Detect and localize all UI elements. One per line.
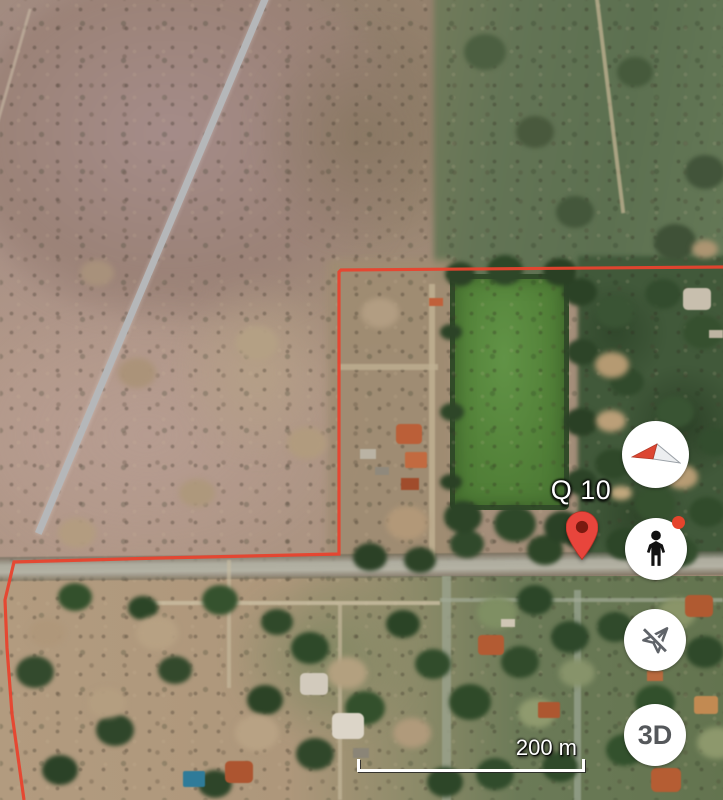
dirt-track <box>338 604 342 800</box>
street-view-badge <box>672 516 685 529</box>
pegman-icon <box>641 530 671 568</box>
terrain-buildings <box>0 0 22 16</box>
terrain-speckle <box>0 0 723 800</box>
pin-label: Q 10 <box>526 475 636 506</box>
dirt-track <box>338 364 438 370</box>
plane-crossed-icon <box>638 623 672 657</box>
satellite-map[interactable]: Q 10 <box>0 0 723 800</box>
scale-label: 200 m <box>417 735 577 761</box>
earth-app-screen: Q 10 3D 200 m <box>0 0 723 800</box>
flight-off-button[interactable] <box>624 609 686 671</box>
map-pin[interactable] <box>566 511 598 560</box>
dirt-track <box>227 560 231 688</box>
dirt-track <box>140 601 440 605</box>
scale-bracket <box>357 759 585 772</box>
three-d-label: 3D <box>638 720 673 751</box>
dirt-track <box>429 284 435 560</box>
compass-needle-icon <box>631 442 681 468</box>
scale-bar: 200 m <box>357 735 587 775</box>
compass-button[interactable] <box>622 421 689 488</box>
three-d-button[interactable]: 3D <box>624 704 686 766</box>
dirt-track <box>440 598 723 602</box>
